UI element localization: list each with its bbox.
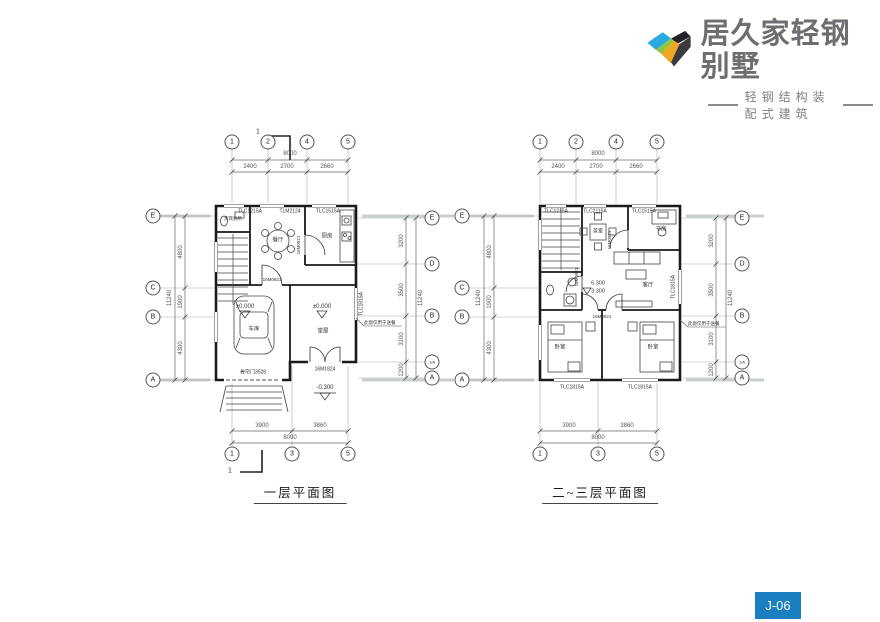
grid-bubble: E (455, 209, 470, 224)
dim-label: 3860 (313, 423, 326, 429)
level-label: 6.300 (591, 281, 605, 287)
dim-label: 8000 (591, 435, 604, 441)
grid-bubble: B (425, 309, 440, 324)
dim-label: 4800 (487, 245, 493, 258)
dim-label: 8000 (283, 435, 296, 441)
grid-bubble: 5 (650, 447, 665, 462)
brand-logo-icon (646, 22, 691, 76)
grid-bubble: 3 (285, 447, 300, 462)
door-label: 16M0921 (297, 236, 302, 255)
grid-bubble: 2 (569, 135, 584, 150)
grid-bubble: A (146, 373, 161, 388)
dim-label: 2400 (551, 164, 564, 170)
grid-bubble: 5 (650, 135, 665, 150)
grid-bubble: 1 (533, 447, 548, 462)
door-label: 16M1824 (315, 368, 336, 373)
dim-label: 3200 (399, 234, 405, 247)
dim-label: 4800 (178, 245, 184, 258)
dim-label: 2660 (320, 164, 333, 170)
grid-bubble: E (425, 211, 440, 226)
dim-label: 3900 (255, 423, 268, 429)
level-label: ±0.000 (236, 304, 254, 310)
dim-label: 1200 (709, 363, 715, 376)
grid-bubble: 1 (533, 135, 548, 150)
room-label: 书房 (655, 227, 666, 233)
grid-bubble: 5 (341, 135, 356, 150)
room-label: 车库 (248, 327, 259, 333)
plan-title-upper: 二~三层平面图 (542, 482, 658, 504)
dim-label: 2700 (280, 164, 293, 170)
plan-title-first: 一层平面图 (254, 482, 347, 504)
grid-bubble: A (735, 371, 750, 386)
brand-tagline-row: 轻钢结构装配式建筑 (701, 88, 880, 122)
grid-bubble: D (735, 257, 750, 272)
grid-bubble: A (455, 373, 470, 388)
room-label: 厨房 (321, 234, 332, 240)
dim-label: 11240 (167, 290, 173, 306)
brand-name: 居久家轻钢别墅 (701, 18, 880, 85)
room-label: 卧室 (554, 345, 565, 351)
dim-label: 3200 (709, 234, 715, 247)
grid-bubble: 1/A (425, 355, 440, 370)
window-label: TLC1815A (628, 386, 652, 391)
room-label: 卧室 (647, 345, 658, 351)
grid-bubble: 1 (225, 447, 240, 462)
grid-bubble: 5 (341, 447, 356, 462)
dim-label: 3100 (399, 332, 405, 345)
dim-label: 1900 (487, 295, 493, 308)
grid-bubble: 4 (609, 135, 624, 150)
room-label: 贵宾厕所 (224, 217, 242, 222)
brand-tagline: 轻钢结构装配式建筑 (745, 88, 836, 122)
level-label: ±0.000 (313, 304, 331, 310)
window-label: TLC2115A (583, 210, 607, 215)
section-mark-label: 1 (256, 129, 260, 136)
dim-label: 2700 (589, 164, 602, 170)
level-label: -0.300 (316, 385, 333, 391)
window-label: TLC1815A (672, 275, 677, 299)
grid-bubble: D (425, 257, 440, 272)
room-label: 餐厅 (272, 238, 283, 244)
dim-label: 3860 (620, 423, 633, 429)
room-label: 堂屋 (317, 329, 328, 335)
window-label: TLC1815A (360, 292, 365, 316)
grid-bubble: E (735, 211, 750, 226)
dim-label: 2400 (243, 164, 256, 170)
floor-plan-drawing-first (140, 120, 460, 520)
brand-header: 居久家轻钢别墅 轻钢结构装配式建筑 (646, 18, 880, 122)
dim-label: 11240 (476, 290, 482, 306)
door-label: 16M0921 (593, 315, 612, 320)
grid-bubble: B (146, 310, 161, 325)
note-label: 此窗仅用于送餐 (364, 321, 396, 326)
window-label: TLC1515A (316, 210, 340, 215)
dim-label: 11240 (418, 290, 424, 306)
window-label: TLC1815A (560, 386, 584, 391)
room-label: 客厅 (642, 283, 653, 289)
floor-plan-drawing-upper (450, 120, 770, 520)
dim-label: 3500 (399, 283, 405, 296)
note-label: 此窗仅用于送餐 (688, 322, 720, 327)
door-label: 16M0921 (608, 231, 613, 250)
window-label: TLC1515A (632, 210, 656, 215)
window-label: TLM2124 (279, 210, 300, 215)
section-mark-label: 1 (228, 468, 232, 475)
page-number-badge: J-06 (755, 592, 801, 619)
window-label: TLC1215A (238, 210, 262, 215)
grid-bubble: 3 (591, 447, 606, 462)
dim-label: 8000 (283, 151, 296, 157)
grid-bubble: 2 (261, 135, 276, 150)
dim-label: 3900 (562, 423, 575, 429)
door-label: 16M0921 (575, 268, 580, 287)
floor-plan-upper: 1 2 4 5 1 3 5 E C B A E D B 1/A A 8000 2… (450, 120, 770, 520)
dim-label: 1200 (399, 363, 405, 376)
grid-bubble: E (146, 209, 161, 224)
dim-label: 11240 (728, 290, 734, 306)
grid-bubble: 1/A (735, 355, 750, 370)
window-label: TLC1215A (544, 210, 568, 215)
room-label: 茶室 (593, 230, 603, 235)
level-label: 3.300 (591, 289, 605, 295)
grid-bubble: B (455, 310, 470, 325)
grid-bubble: A (425, 371, 440, 386)
dim-label: 3100 (709, 332, 715, 345)
dim-label: 3500 (709, 283, 715, 296)
grid-bubble: C (146, 281, 161, 296)
dim-label: 8000 (591, 151, 604, 157)
dim-label: 4300 (178, 341, 184, 354)
grid-bubble: 4 (300, 135, 315, 150)
dim-label: 1900 (178, 295, 184, 308)
grid-bubble: B (735, 309, 750, 324)
door-label: 卷帘门3528 (240, 371, 266, 376)
door-label: 16M0921 (263, 278, 282, 283)
dim-label: 4300 (487, 341, 493, 354)
dim-label: 2660 (629, 164, 642, 170)
grid-bubble: 1 (225, 135, 240, 150)
grid-bubble: C (455, 281, 470, 296)
floor-plan-first: 1 2 4 5 1 3 5 E C B A E D B 1/A A 8000 2… (140, 120, 460, 520)
